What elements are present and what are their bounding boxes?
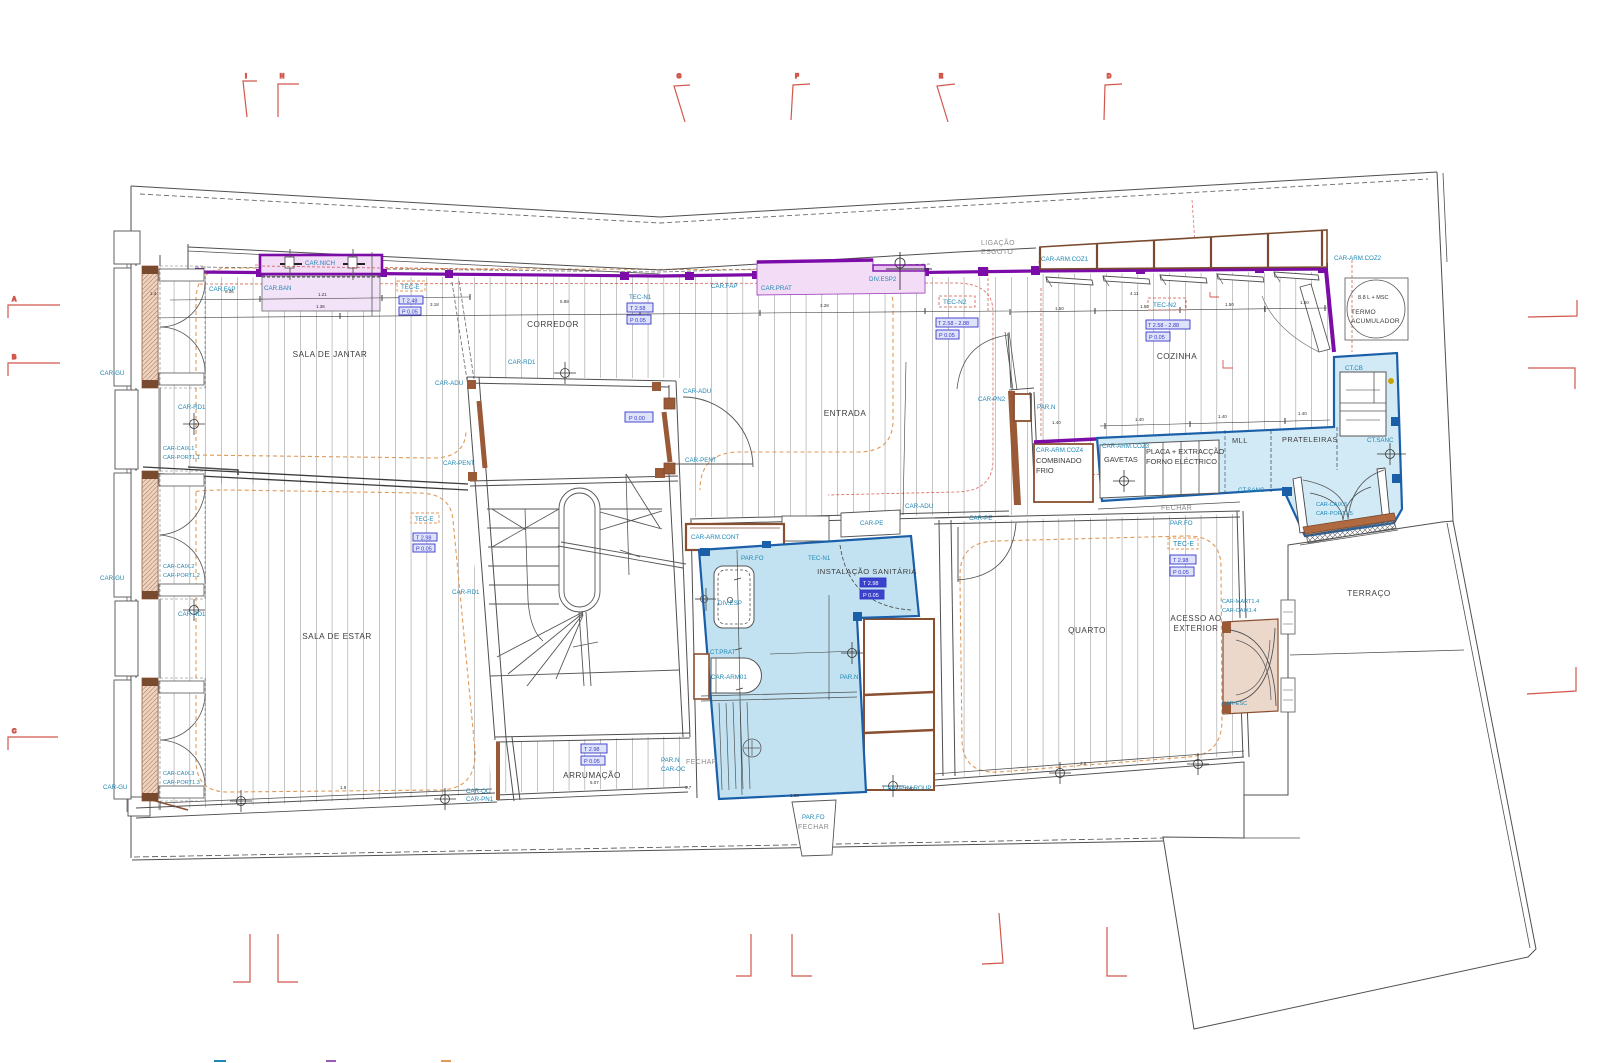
svg-text:PRATELEIRAS: PRATELEIRAS [1282, 435, 1338, 444]
svg-text:ACUMULADOR: ACUMULADOR [1351, 318, 1400, 325]
svg-text:CAR.BAN: CAR.BAN [264, 285, 292, 292]
svg-text:T 2.48: T 2.48 [402, 299, 418, 305]
svg-text:CAR-PN2: CAR-PN2 [978, 396, 1006, 403]
svg-text:1.40: 1.40 [1052, 420, 1061, 425]
svg-text:1.40: 1.40 [1135, 417, 1144, 422]
svg-text:TEC-E: TEC-E [415, 516, 434, 523]
svg-text:TEC-N1: TEC-N1 [629, 294, 652, 301]
svg-text:CORREDOR: CORREDOR [527, 320, 579, 329]
svg-text:PAR.N: PAR.N [661, 757, 679, 764]
svg-text:P 0.05: P 0.05 [584, 759, 600, 765]
svg-text:TERRAÇO: TERRAÇO [1347, 589, 1391, 598]
svg-text:1.50: 1.50 [1225, 302, 1234, 307]
svg-text:SALA DE ESTAR: SALA DE ESTAR [302, 632, 372, 641]
svg-text:TEC-N2: TEC-N2 [1153, 302, 1177, 309]
svg-text:1.21: 1.21 [318, 292, 327, 297]
svg-text:T 2.58 - 2.88: T 2.58 - 2.88 [938, 321, 969, 327]
svg-text:3.18: 3.18 [430, 302, 439, 307]
svg-text:T 2.98: T 2.98 [416, 536, 432, 542]
svg-text:CAR-ADU: CAR-ADU [905, 503, 933, 510]
svg-text:TEC-N2: TEC-N2 [943, 299, 967, 306]
svg-text:TERMO: TERMO [1351, 309, 1376, 316]
svg-text:PAR.FO: PAR.FO [741, 555, 764, 562]
svg-text:COZINHA: COZINHA [1157, 352, 1197, 361]
svg-text:CAR-RD1: CAR-RD1 [508, 359, 536, 366]
svg-text:MLL: MLL [1232, 436, 1248, 445]
svg-text:1.40: 1.40 [1218, 414, 1227, 419]
svg-text:B: B [12, 355, 17, 361]
svg-text:PAR.N: PAR.N [1037, 404, 1055, 411]
svg-text:CAR-PENT: CAR-PENT [685, 457, 717, 464]
svg-text:GAVETAS: GAVETAS [1104, 455, 1138, 464]
svg-text:CAR-GU: CAR-GU [100, 575, 124, 582]
svg-text:CAR.FAP: CAR.FAP [711, 283, 737, 290]
svg-text:D: D [1107, 74, 1112, 80]
svg-text:SALA DE JANTAR: SALA DE JANTAR [293, 350, 368, 359]
svg-text:CAR-PORT1.5: CAR-PORT1.5 [1316, 511, 1353, 517]
svg-text:CAR-PE: CAR-PE [969, 515, 992, 522]
svg-text:P 0.05: P 0.05 [939, 333, 955, 339]
svg-text:LIGAÇÃO: LIGAÇÃO [981, 238, 1015, 247]
svg-text:PLACA + EXTRACÇÃO: PLACA + EXTRACÇÃO [1146, 447, 1224, 456]
svg-text:CAR-GU: CAR-GU [100, 370, 124, 377]
svg-text:CAR.PRAT: CAR.PRAT [761, 285, 792, 292]
svg-text:P 0.05: P 0.05 [416, 547, 432, 553]
svg-text:3.6: 3.6 [1080, 761, 1087, 766]
svg-text:CAR-PN1: CAR-PN1 [466, 796, 494, 803]
svg-text:COMBINADO: COMBINADO [1036, 456, 1082, 465]
svg-text:CAR-RD1: CAR-RD1 [178, 404, 206, 411]
svg-text:TEC-E: TEC-E [1173, 541, 1194, 548]
svg-text:T 2.98: T 2.98 [584, 747, 600, 753]
svg-text:P 0.05: P 0.05 [1173, 570, 1189, 576]
svg-text:G: G [677, 74, 682, 80]
svg-text:ESGOTO: ESGOTO [981, 249, 1013, 256]
svg-text:CAR-OC: CAR-OC [661, 766, 686, 773]
svg-text:E: E [939, 74, 943, 80]
svg-text:CAR-PENT: CAR-PENT [443, 460, 475, 467]
svg-text:PAR.FO: PAR.FO [802, 814, 825, 821]
svg-text:CAR-CAIX1.4: CAR-CAIX1.4 [1222, 608, 1257, 614]
svg-text:CAR-RD1: CAR-RD1 [452, 589, 480, 596]
svg-text:ENTRADA: ENTRADA [824, 409, 867, 418]
svg-text:FORNO ELÉCTRICO: FORNO ELÉCTRICO [1146, 457, 1217, 466]
svg-text:5.88: 5.88 [560, 299, 569, 304]
svg-text:PAR.N: PAR.N [840, 674, 858, 681]
svg-text:CT.SANC: CT.SANC [1238, 487, 1265, 494]
svg-text:TEC-N1: TEC-N1 [808, 555, 831, 562]
svg-text:CAR-CAIX.1: CAR-CAIX.1 [163, 446, 194, 452]
svg-text:CAR-MART1.4: CAR-MART1.4 [1222, 599, 1259, 605]
svg-text:ARRUMAÇÃO: ARRUMAÇÃO [563, 770, 621, 780]
svg-text:ACESSO AO: ACESSO AO [1170, 614, 1221, 623]
svg-text:FRIO: FRIO [1036, 466, 1054, 475]
svg-text:1.98: 1.98 [790, 793, 799, 798]
svg-text:CAR-ARM.COZ4: CAR-ARM.COZ4 [1036, 447, 1084, 454]
svg-text:FECHAR: FECHAR [1161, 505, 1192, 512]
svg-text:5.07: 5.07 [590, 780, 599, 785]
svg-text:A: A [12, 297, 17, 303]
svg-text:CAR-PE: CAR-PE [860, 520, 883, 527]
svg-text:4.11: 4.11 [1130, 291, 1139, 296]
svg-text:FECHAR: FECHAR [798, 824, 829, 831]
svg-text:3.28: 3.28 [820, 303, 829, 308]
svg-text:CAR-ADU: CAR-ADU [435, 380, 463, 387]
svg-text:T 2.98: T 2.98 [1173, 558, 1189, 564]
svg-text:0.40: 0.40 [905, 786, 914, 791]
svg-text:T 2.58 - 2.88: T 2.58 - 2.88 [1148, 323, 1179, 329]
svg-text:T 2.98: T 2.98 [863, 581, 879, 587]
svg-text:QUARTO: QUARTO [1068, 626, 1106, 635]
svg-text:EXTERIOR: EXTERIOR [1174, 624, 1219, 633]
svg-text:CAR-PORT1.1: CAR-PORT1.1 [163, 455, 200, 461]
svg-text:DIV.ESP: DIV.ESP [718, 600, 742, 607]
svg-text:P 0.00: P 0.00 [629, 416, 645, 422]
svg-text:P 0.05: P 0.05 [402, 310, 418, 316]
svg-text:P 0.05: P 0.05 [1149, 335, 1165, 341]
svg-text:CAR-ADU: CAR-ADU [683, 388, 711, 395]
svg-text:1.40: 1.40 [1298, 411, 1307, 416]
svg-text:CAR-CAIX.2: CAR-CAIX.2 [163, 564, 194, 570]
svg-text:1.9: 1.9 [340, 785, 347, 790]
svg-text:CAR-CAIX.3: CAR-CAIX.3 [163, 771, 194, 777]
svg-text:6.06: 6.06 [225, 289, 234, 294]
svg-text:CAR-ARM.COZ3: CAR-ARM.COZ3 [1102, 443, 1150, 450]
svg-text:CAR-PORT1.3: CAR-PORT1.3 [163, 780, 200, 786]
svg-text:1.4: 1.4 [150, 291, 157, 296]
svg-text:1.50: 1.50 [1055, 306, 1064, 311]
svg-text:CAR.NICH: CAR.NICH [305, 260, 335, 267]
svg-text:CAR-ARM.CONT: CAR-ARM.CONT [691, 534, 739, 541]
svg-text:CAR-OC: CAR-OC [466, 788, 491, 795]
svg-text:CAR-ESC: CAR-ESC [1222, 701, 1247, 707]
svg-text:1.50: 1.50 [1140, 304, 1149, 309]
svg-text:FECHAR: FECHAR [686, 759, 717, 766]
svg-text:T 2.58: T 2.58 [630, 306, 646, 312]
svg-text:INSTALAÇÃO SANITÁRIA: INSTALAÇÃO SANITÁRIA [817, 567, 917, 576]
svg-text:CAR-ARM.COZ2: CAR-ARM.COZ2 [1334, 255, 1382, 262]
svg-text:CAR-RD1: CAR-RD1 [178, 611, 206, 618]
svg-text:1.50: 1.50 [1300, 300, 1309, 305]
svg-text:1.36: 1.36 [316, 304, 325, 309]
svg-text:CAR-ARM.COZ1: CAR-ARM.COZ1 [1041, 256, 1089, 263]
svg-text:PAR.FO: PAR.FO [1170, 520, 1193, 527]
svg-text:TEC-E: TEC-E [401, 284, 420, 291]
svg-text:DIV.ESP2: DIV.ESP2 [869, 276, 897, 283]
svg-text:P 0.05: P 0.05 [863, 593, 879, 599]
svg-text:C: C [12, 729, 17, 735]
svg-text:H: H [280, 74, 284, 80]
svg-text:CAR-GU: CAR-GU [103, 784, 127, 791]
svg-text:CAR-PORT1.2: CAR-PORT1.2 [163, 573, 200, 579]
svg-text:CT.SANC: CT.SANC [1367, 437, 1394, 444]
svg-text:P 0.05: P 0.05 [630, 318, 646, 324]
svg-text:8.8 L + MSC: 8.8 L + MSC [1358, 295, 1389, 301]
svg-text:CT.CB: CT.CB [1345, 365, 1363, 372]
svg-text:CT.PRAT: CT.PRAT [710, 649, 736, 656]
svg-text:F: F [795, 74, 799, 80]
svg-text:CAR-ARM01: CAR-ARM01 [711, 674, 747, 681]
svg-text:0.7: 0.7 [685, 785, 692, 790]
svg-text:CAR-CAIX.5: CAR-CAIX.5 [1316, 502, 1347, 508]
